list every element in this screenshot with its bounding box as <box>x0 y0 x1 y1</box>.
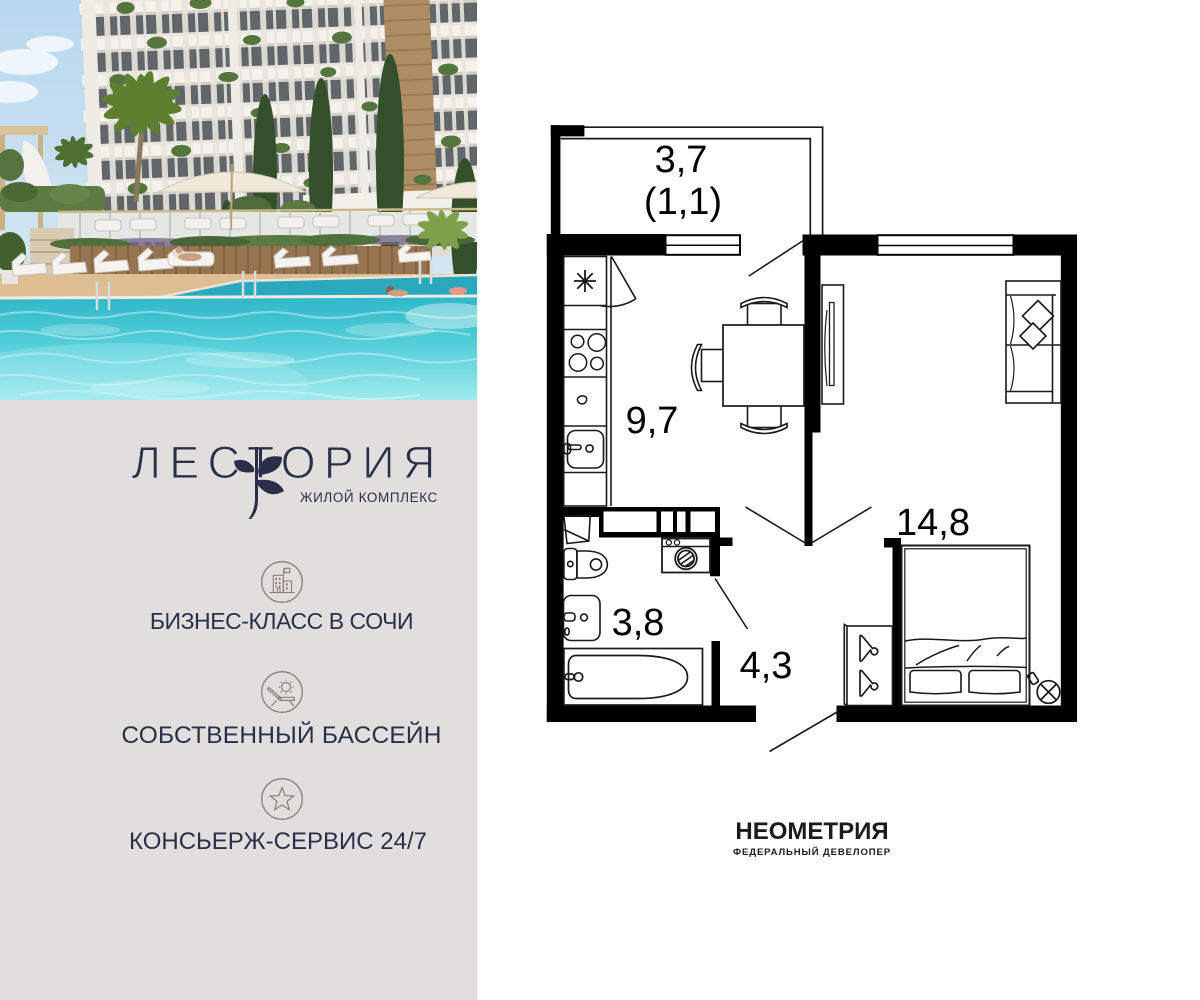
svg-text:4,3: 4,3 <box>740 645 793 687</box>
svg-text:(1,1): (1,1) <box>644 181 722 223</box>
svg-text:14,8: 14,8 <box>896 502 970 544</box>
svg-text:3,7: 3,7 <box>655 139 708 181</box>
svg-text:9,7: 9,7 <box>626 400 679 442</box>
svg-text:3,8: 3,8 <box>612 602 665 644</box>
